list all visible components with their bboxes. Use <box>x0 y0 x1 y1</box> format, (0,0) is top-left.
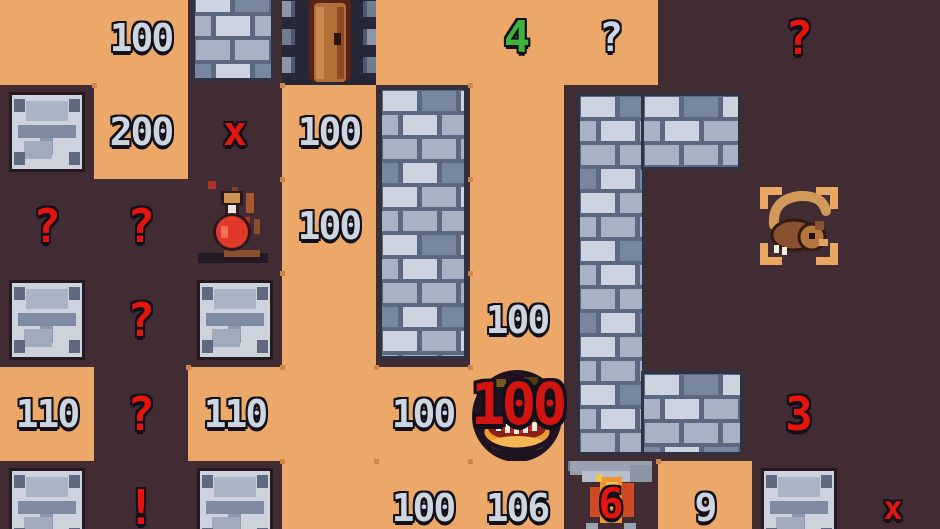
brick <box>379 259 398 279</box>
tile-label: 100 <box>282 85 376 179</box>
number-110[interactable]: 110 <box>0 367 94 461</box>
red-cross-small[interactable]: x <box>846 461 940 529</box>
brick <box>704 121 738 141</box>
brick <box>422 91 456 111</box>
number-100[interactable]: 100 <box>376 461 470 529</box>
brick <box>383 331 417 351</box>
red-question-mark[interactable]: ? <box>94 367 188 461</box>
wall-c-vertical <box>577 93 645 455</box>
maw-monster-hp[interactable]: 100 <box>470 367 564 461</box>
stone-block-icon <box>188 273 282 367</box>
number-110[interactable]: 110 <box>188 367 282 461</box>
brick <box>403 307 437 327</box>
tile-label: 9 <box>658 461 752 529</box>
floor-cell <box>0 0 94 85</box>
brick <box>383 139 417 159</box>
brick <box>461 139 467 159</box>
brick <box>581 385 615 405</box>
floor-cell <box>282 461 376 529</box>
brick <box>640 313 645 333</box>
brick <box>216 16 250 36</box>
tile-label: 3 <box>752 367 846 461</box>
wall-c-top <box>641 93 741 170</box>
brick <box>379 115 398 135</box>
brick <box>620 193 645 213</box>
brick <box>255 64 274 81</box>
floor-cell <box>470 85 564 179</box>
floor-corner-dot <box>280 365 285 370</box>
floor-cell <box>282 367 376 461</box>
number-100[interactable]: 100 <box>376 367 470 461</box>
stone-block-icon <box>0 273 94 367</box>
brick <box>581 241 615 261</box>
brick <box>581 337 615 357</box>
dark-cell <box>658 179 752 273</box>
brick <box>577 169 596 189</box>
tile-label: x <box>846 461 940 529</box>
door[interactable] <box>282 0 376 85</box>
stone-block-icon <box>0 85 94 179</box>
tile-label: 110 <box>0 367 94 461</box>
brick <box>461 187 467 207</box>
brick <box>684 97 718 117</box>
dark-cell <box>846 273 940 367</box>
brick <box>723 145 741 165</box>
stone-block-icon <box>752 461 846 529</box>
brick <box>235 40 269 60</box>
tile-label: 100 <box>282 179 376 273</box>
brick <box>442 115 467 135</box>
brick <box>641 399 660 419</box>
number-100[interactable]: 100 <box>282 85 376 179</box>
brick <box>461 235 467 255</box>
dark-cell <box>752 85 846 179</box>
brick <box>601 169 635 189</box>
potion[interactable] <box>188 179 282 273</box>
brick <box>192 64 211 81</box>
number-200[interactable]: 200 <box>94 85 188 179</box>
dark-cell <box>846 85 940 179</box>
brick <box>665 447 699 455</box>
brick <box>645 145 679 165</box>
brick <box>216 64 250 81</box>
brick <box>422 283 456 303</box>
door-icon <box>282 0 376 85</box>
brick <box>704 399 738 419</box>
brick <box>442 211 467 231</box>
brick <box>255 16 274 36</box>
wall-left-vertical <box>379 87 467 359</box>
floor-corner-dot <box>468 83 473 88</box>
brick <box>684 145 718 165</box>
stone-block-icon <box>188 461 282 529</box>
brick <box>422 187 456 207</box>
brick <box>620 289 645 309</box>
brick <box>442 307 467 327</box>
red-question-mark[interactable]: ? <box>94 273 188 367</box>
brick <box>665 121 699 141</box>
stone-block[interactable] <box>188 273 282 367</box>
brick <box>601 265 635 285</box>
brick <box>422 235 456 255</box>
brick <box>383 235 417 255</box>
dark-cell <box>658 0 752 85</box>
brick <box>581 289 615 309</box>
brick <box>442 259 467 279</box>
rat-icon <box>752 179 846 273</box>
brick <box>383 283 417 303</box>
brick <box>379 307 398 327</box>
red-number-3[interactable]: 3 <box>752 367 846 461</box>
brick <box>403 259 437 279</box>
brick <box>577 217 596 237</box>
stone-block[interactable] <box>0 273 94 367</box>
brick <box>442 163 467 183</box>
brick <box>577 361 596 381</box>
brick <box>645 97 679 117</box>
brick <box>403 163 437 183</box>
brick <box>601 121 635 141</box>
brick <box>723 97 741 117</box>
potion-icon <box>188 179 282 273</box>
number-100[interactable]: 100 <box>470 273 564 367</box>
floor-cell <box>282 273 376 367</box>
red-question-mark[interactable]: ? <box>752 0 846 85</box>
stone-block[interactable] <box>188 461 282 529</box>
stone-block-icon <box>0 461 94 529</box>
tile-label: ? <box>564 0 658 85</box>
stone-block[interactable] <box>752 461 846 529</box>
brick <box>577 409 596 429</box>
rat-monster[interactable] <box>752 179 846 273</box>
brick <box>442 355 467 359</box>
stone-block[interactable] <box>0 461 94 529</box>
tile-label: 110 <box>188 367 282 461</box>
brick <box>577 313 596 333</box>
brick <box>581 433 615 453</box>
brick-tile <box>192 0 274 81</box>
flame-monster-hp[interactable]: 6 <box>564 461 658 529</box>
tile-label: ? <box>94 273 188 367</box>
tile-label: ! <box>94 461 188 529</box>
number-100[interactable]: 100 <box>94 0 188 85</box>
floor-corner-dot <box>280 271 285 276</box>
red-question-mark[interactable]: ? <box>94 179 188 273</box>
brick <box>461 331 467 351</box>
tile-label: 4 <box>470 0 564 85</box>
brick <box>422 331 456 351</box>
tile-label: ? <box>94 179 188 273</box>
brick <box>581 145 615 165</box>
wall-c-bottom <box>641 371 743 455</box>
tile-label: 100 <box>376 367 470 461</box>
brick <box>383 187 417 207</box>
silver-question-mark[interactable]: ? <box>564 0 658 85</box>
brick <box>196 40 230 60</box>
brick <box>192 16 211 36</box>
floor-cell <box>376 0 470 85</box>
brick <box>196 0 230 12</box>
brick <box>620 241 645 261</box>
brick <box>379 211 398 231</box>
brick <box>235 0 269 12</box>
tile-label: ? <box>752 0 846 85</box>
brick <box>581 97 615 117</box>
number-100[interactable]: 100 <box>282 179 376 273</box>
brick <box>640 217 645 237</box>
tile-label: 106 <box>470 461 564 529</box>
brick <box>577 121 596 141</box>
tile-label: 100 <box>470 357 564 451</box>
stone-block[interactable] <box>0 85 94 179</box>
brick <box>640 169 645 189</box>
red-question-mark[interactable]: ? <box>0 179 94 273</box>
brick <box>601 409 635 429</box>
brick <box>581 193 615 213</box>
brick <box>684 375 718 395</box>
dark-cell <box>846 367 940 461</box>
brick <box>620 337 645 357</box>
brick <box>601 361 635 381</box>
brick <box>379 355 398 359</box>
brick <box>577 265 596 285</box>
brick <box>641 447 660 455</box>
brick <box>383 91 417 111</box>
brick <box>601 217 635 237</box>
red-cross[interactable]: x <box>188 85 282 179</box>
floor-corner-dot <box>280 459 285 464</box>
brick <box>723 375 743 395</box>
tile-label: 200 <box>94 85 188 179</box>
dark-cell <box>846 0 940 85</box>
dark-cell <box>658 273 752 367</box>
dark-cell <box>752 273 846 367</box>
number-106[interactable]: 106 <box>470 461 564 529</box>
brick <box>641 121 660 141</box>
brick <box>403 211 437 231</box>
brick <box>403 355 437 359</box>
number-9[interactable]: 9 <box>658 461 752 529</box>
tile-label: 6 <box>564 457 658 529</box>
tile-label: 100 <box>470 273 564 367</box>
brick <box>723 423 743 443</box>
brick <box>461 91 467 111</box>
dark-cell <box>846 179 940 273</box>
brick <box>379 163 398 183</box>
brick <box>461 283 467 303</box>
brick <box>640 265 645 285</box>
floor-corner-dot <box>468 177 473 182</box>
brick <box>645 423 679 443</box>
brick <box>601 313 635 333</box>
tile-label: x <box>188 85 282 179</box>
red-exclamation[interactable]: ! <box>94 461 188 529</box>
tile-label: ? <box>0 179 94 273</box>
tile-label: ? <box>94 367 188 461</box>
brick <box>704 447 738 455</box>
brick <box>645 375 679 395</box>
floor-cell <box>470 179 564 273</box>
brick <box>665 399 699 419</box>
brick <box>422 139 456 159</box>
brick <box>403 115 437 135</box>
green-number-4[interactable]: 4 <box>470 0 564 85</box>
brick <box>684 423 718 443</box>
tile-label: 100 <box>376 461 470 529</box>
tile-label: 100 <box>94 0 188 85</box>
dungeon-grid: 100 4?? 200x100?? 100 ? 100110?110100 10… <box>0 0 940 529</box>
